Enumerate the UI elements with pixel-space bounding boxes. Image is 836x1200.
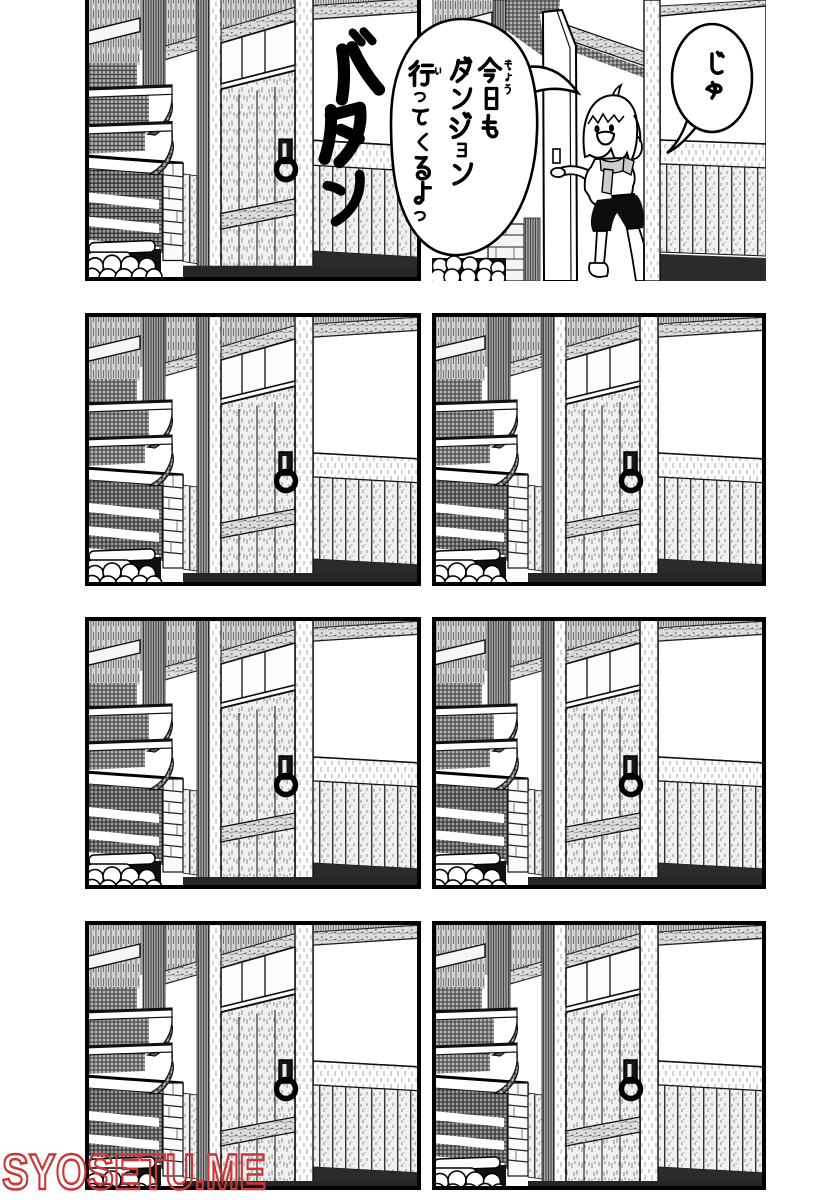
- svg-text:SYOSETU.ME: SYOSETU.ME: [2, 1144, 266, 1200]
